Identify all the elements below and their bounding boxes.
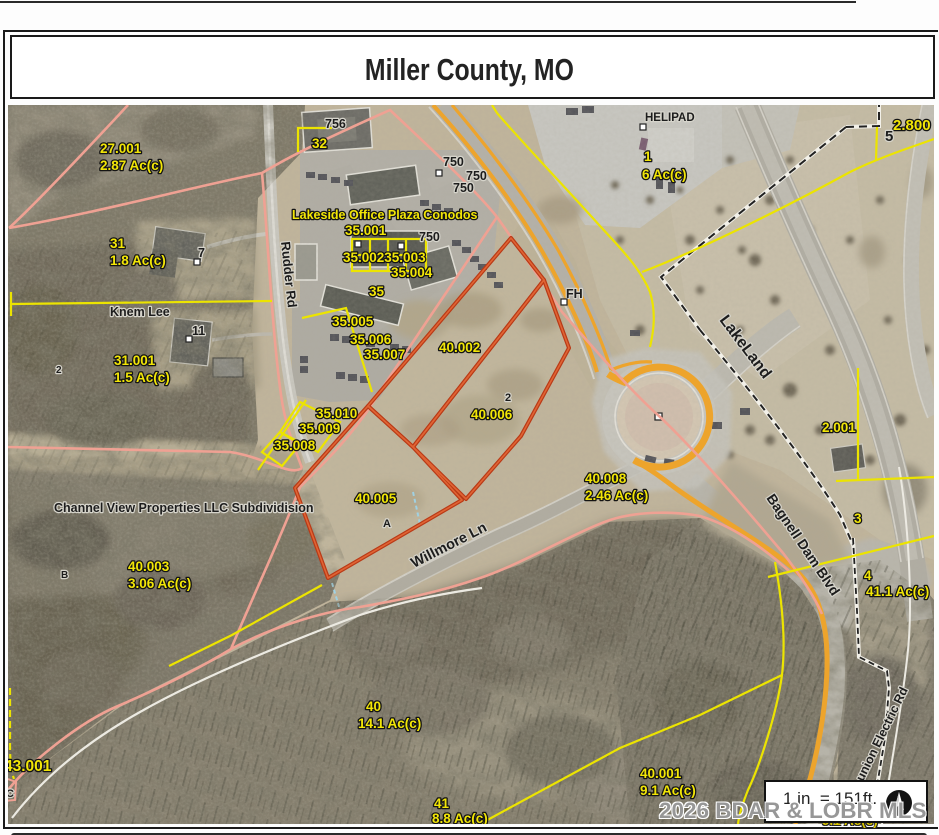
svg-text:1: 1 (644, 149, 652, 164)
svg-text:9.1 Ac(c): 9.1 Ac(c) (640, 783, 696, 798)
svg-text:1.8 Ac(c): 1.8 Ac(c) (110, 253, 166, 268)
svg-text:35.006: 35.006 (350, 332, 392, 347)
svg-text:14.1 Ac(c): 14.1 Ac(c) (358, 716, 421, 731)
svg-text:35.008: 35.008 (274, 438, 316, 453)
svg-text:35.004: 35.004 (391, 265, 433, 280)
svg-text:43.001: 43.001 (8, 758, 52, 775)
svg-text:40.008: 40.008 (585, 471, 627, 486)
svg-text:756: 756 (325, 117, 346, 131)
svg-text:A: A (383, 518, 391, 530)
svg-text:35.005: 35.005 (332, 314, 374, 329)
svg-text:35.001: 35.001 (345, 223, 387, 238)
svg-text:1.5 Ac(c): 1.5 Ac(c) (114, 370, 170, 385)
svg-text:2: 2 (505, 392, 511, 404)
svg-text:750: 750 (419, 230, 440, 244)
svg-text:HELIPAD: HELIPAD (645, 112, 695, 124)
svg-text:Knem Lee: Knem Lee (110, 305, 170, 319)
svg-text:35.00235.003: 35.00235.003 (343, 250, 426, 265)
svg-text:41.1 Ac(c): 41.1 Ac(c) (866, 584, 929, 599)
svg-text:3.06 Ac(c): 3.06 Ac(c) (128, 576, 191, 591)
svg-text:6 Ac(c): 6 Ac(c) (642, 167, 687, 182)
svg-text:11: 11 (192, 324, 205, 338)
svg-text:8.8 Ac(c): 8.8 Ac(c) (432, 811, 488, 824)
svg-text:2.800: 2.800 (893, 117, 931, 134)
svg-text:750: 750 (443, 155, 464, 169)
svg-text:40.001: 40.001 (640, 766, 682, 781)
svg-text:40.003: 40.003 (128, 559, 170, 574)
svg-text:35.010: 35.010 (316, 406, 357, 421)
svg-text:31.001: 31.001 (114, 353, 156, 368)
svg-text:C: C (8, 788, 14, 800)
svg-text:40.006: 40.006 (471, 407, 513, 422)
svg-text:3: 3 (854, 511, 862, 526)
svg-text:40: 40 (366, 699, 381, 714)
svg-text:35.007: 35.007 (364, 347, 405, 362)
svg-text:27.001: 27.001 (100, 141, 142, 156)
svg-text:B: B (61, 570, 68, 581)
svg-text:7: 7 (198, 246, 205, 260)
svg-text:2.46 Ac(c): 2.46 Ac(c) (585, 488, 648, 503)
svg-text:35.009: 35.009 (299, 421, 340, 436)
svg-text:FH: FH (566, 287, 583, 301)
svg-text:Channel View Properties LLC Su: Channel View Properties LLC Subdividisio… (54, 501, 314, 515)
svg-text:2.87 Ac(c): 2.87 Ac(c) (100, 158, 163, 173)
svg-text:4: 4 (864, 568, 872, 583)
svg-text:2.001: 2.001 (822, 420, 856, 435)
svg-text:Lakeside Office Plaza Conodos: Lakeside Office Plaza Conodos (292, 208, 478, 222)
svg-text:40.002: 40.002 (439, 340, 480, 355)
svg-text:5: 5 (885, 128, 893, 145)
svg-text:750: 750 (453, 181, 474, 195)
svg-text:40.005: 40.005 (355, 491, 397, 506)
svg-text:2: 2 (56, 365, 62, 376)
svg-text:32: 32 (312, 136, 327, 151)
svg-text:35: 35 (369, 284, 385, 299)
svg-text:31: 31 (110, 236, 126, 251)
svg-text:41: 41 (434, 796, 450, 811)
